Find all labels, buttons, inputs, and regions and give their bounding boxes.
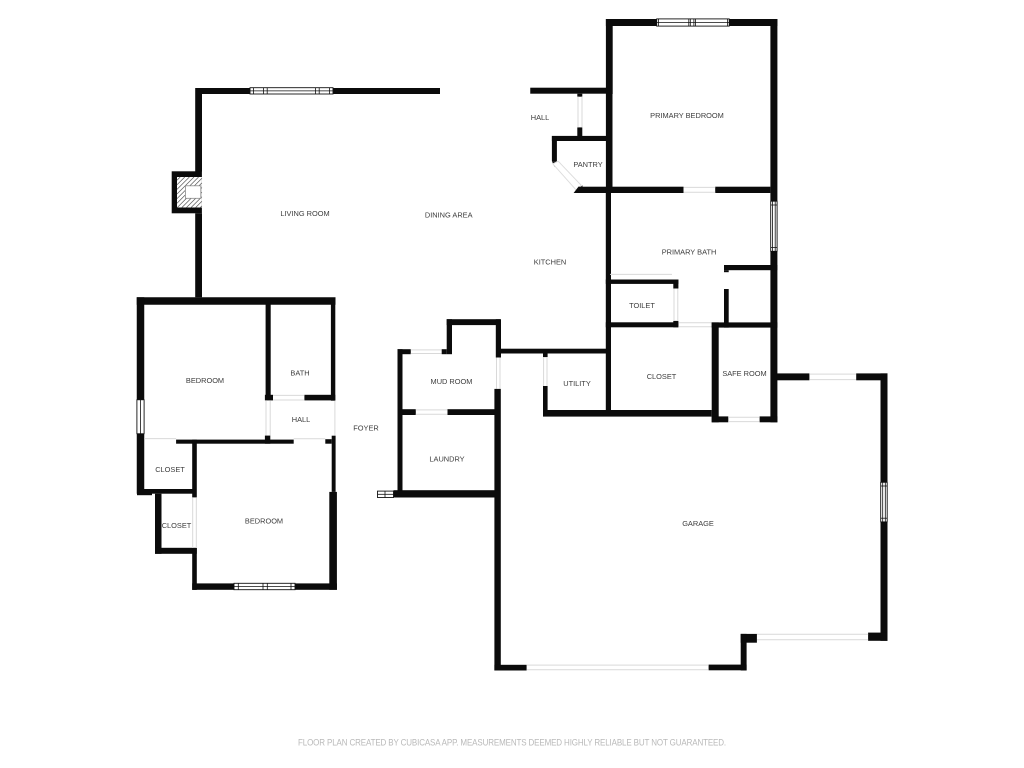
svg-text:DINING AREA: DINING AREA: [425, 211, 473, 220]
svg-text:CLOSET: CLOSET: [162, 521, 192, 530]
svg-text:HALL: HALL: [292, 415, 311, 424]
svg-text:SAFE ROOM: SAFE ROOM: [722, 369, 766, 378]
svg-text:UTILITY: UTILITY: [563, 379, 591, 388]
svg-text:BEDROOM: BEDROOM: [186, 376, 224, 385]
svg-text:BEDROOM: BEDROOM: [245, 517, 283, 526]
svg-text:FLOOR PLAN CREATED BY CUBICASA: FLOOR PLAN CREATED BY CUBICASA APP. MEAS…: [298, 738, 726, 748]
svg-text:LAUNDRY: LAUNDRY: [429, 455, 464, 464]
svg-text:LIVING ROOM: LIVING ROOM: [280, 209, 329, 218]
svg-text:CLOSET: CLOSET: [155, 465, 185, 474]
svg-text:KITCHEN: KITCHEN: [534, 258, 566, 267]
svg-text:GARAGE: GARAGE: [682, 519, 714, 528]
svg-text:MUD ROOM: MUD ROOM: [431, 377, 473, 386]
svg-text:HALL: HALL: [531, 113, 550, 122]
svg-text:FOYER: FOYER: [353, 424, 378, 433]
svg-text:TOILET: TOILET: [629, 301, 655, 310]
svg-text:BATH: BATH: [290, 369, 309, 378]
svg-text:PRIMARY BEDROOM: PRIMARY BEDROOM: [650, 111, 724, 120]
svg-text:PRIMARY BATH: PRIMARY BATH: [662, 248, 717, 257]
svg-text:CLOSET: CLOSET: [647, 372, 677, 381]
svg-text:PANTRY: PANTRY: [573, 160, 602, 169]
